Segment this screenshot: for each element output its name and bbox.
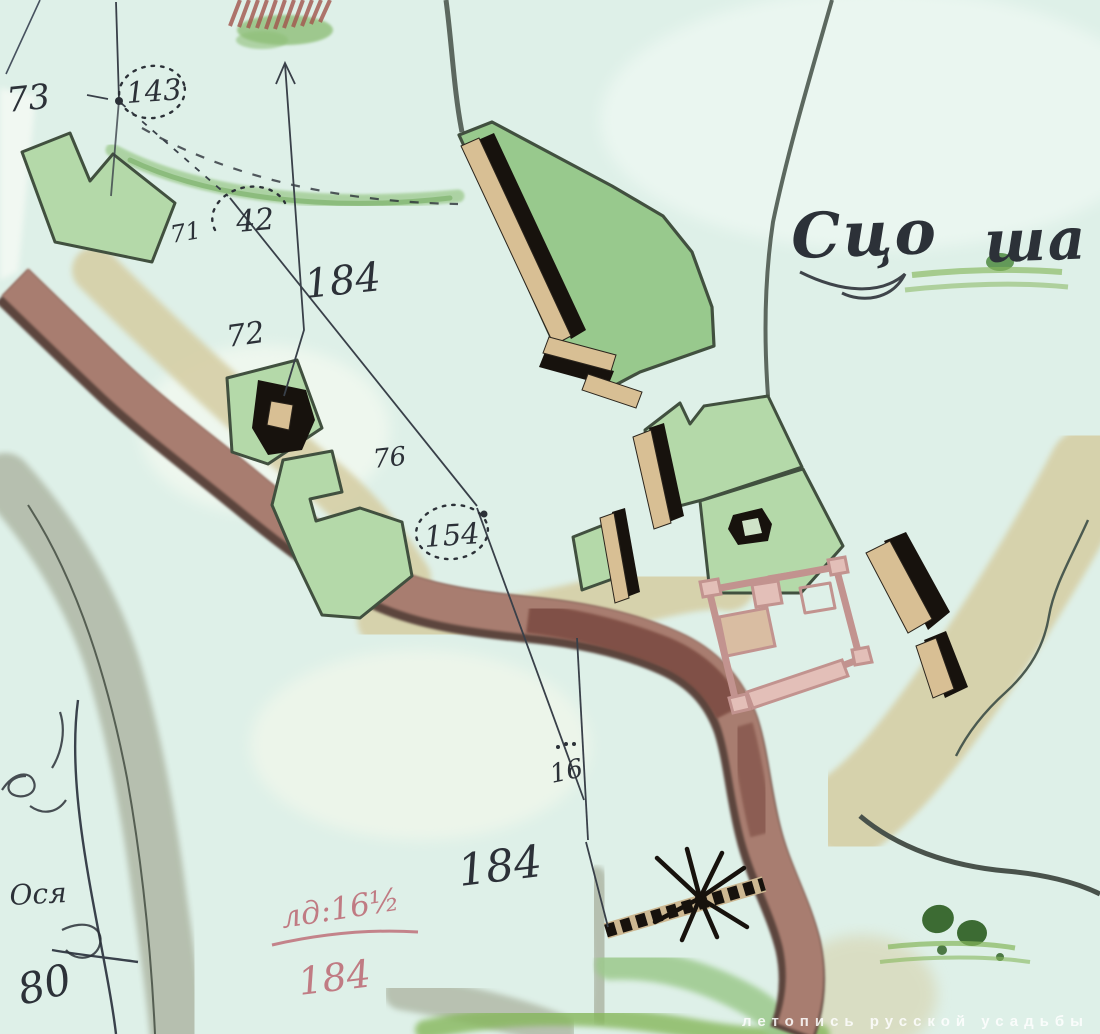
- label-143: 143: [125, 72, 183, 110]
- watermark-text: летопись русской усадьбы: [742, 1013, 1089, 1030]
- label-76: 76: [372, 442, 408, 475]
- courtyard-corner-pavilion: [700, 579, 721, 597]
- settlement-name-part2: ша: [983, 204, 1088, 276]
- label-72: 72: [224, 315, 267, 355]
- bush: [937, 945, 947, 955]
- label-154: 154: [423, 516, 481, 554]
- millstream-bank: [595, 878, 604, 1012]
- settlement-name-part1: Сцо: [790, 195, 939, 273]
- label-42: 42: [234, 202, 276, 240]
- courtyard-corner-pavilion: [729, 694, 750, 713]
- label-73: 73: [5, 77, 52, 121]
- field-green-blob: [236, 31, 288, 49]
- label-71: 71: [168, 216, 203, 249]
- scanned-estate-map: 73 143 71 42 184 72 76 154 16 184 Сцо ша…: [0, 0, 1100, 1034]
- courtyard-inner-square-left: [752, 581, 782, 607]
- courtyard-main-house: [719, 608, 775, 656]
- red-note-denominator: 184: [296, 951, 373, 1004]
- map-canvas: 73 143 71 42 184 72 76 154 16 184 Сцо ша…: [0, 0, 1100, 1034]
- label-corner-word: Ося: [9, 876, 68, 912]
- dot-near-16: [572, 742, 576, 746]
- dot-near-16: [556, 745, 560, 749]
- label-184-upper: 184: [302, 254, 383, 308]
- courtyard-corner-pavilion: [828, 557, 848, 575]
- label-184-lower: 184: [455, 836, 545, 897]
- dot-near-16: [564, 742, 568, 746]
- hatched-building-court: [267, 401, 293, 430]
- courtyard-corner-pavilion: [852, 647, 872, 665]
